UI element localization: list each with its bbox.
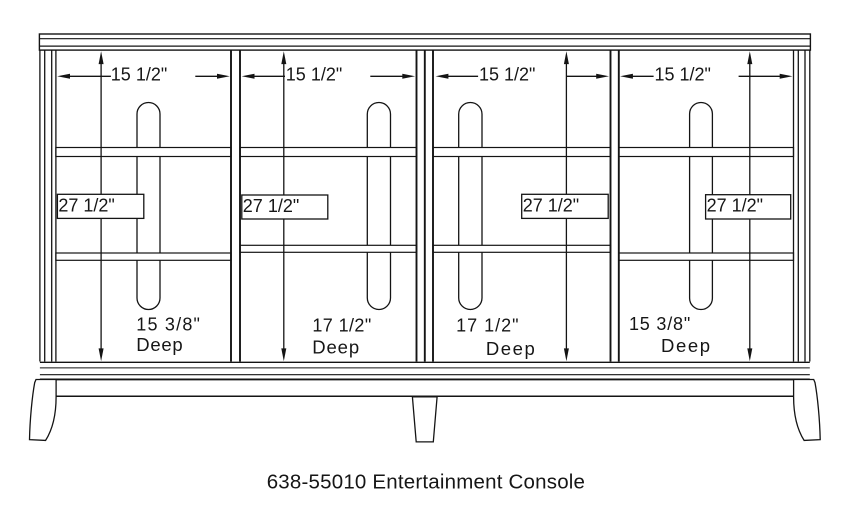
svg-text:17 1/2": 17 1/2" [312, 315, 371, 335]
svg-text:15 3/8": 15 3/8" [136, 315, 201, 335]
svg-text:Deep: Deep [136, 334, 183, 355]
svg-text:Deep: Deep [661, 335, 712, 356]
svg-text:15 1/2": 15 1/2" [286, 64, 342, 84]
svg-text:27 1/2": 27 1/2" [58, 195, 114, 215]
svg-text:15 1/2": 15 1/2" [479, 64, 535, 84]
svg-text:638-55010 Entertainment Consol: 638-55010 Entertainment Console [267, 471, 585, 494]
svg-text:15 1/2": 15 1/2" [111, 64, 167, 84]
svg-text:27 1/2": 27 1/2" [523, 195, 579, 215]
svg-text:27 1/2": 27 1/2" [243, 196, 299, 216]
svg-text:15 1/2": 15 1/2" [655, 64, 711, 84]
svg-text:27 1/2": 27 1/2" [707, 196, 763, 216]
svg-text:Deep: Deep [312, 337, 360, 358]
svg-text:15 3/8": 15 3/8" [629, 314, 691, 334]
svg-text:17 1/2": 17 1/2" [456, 315, 519, 335]
svg-text:Deep: Deep [486, 338, 536, 359]
